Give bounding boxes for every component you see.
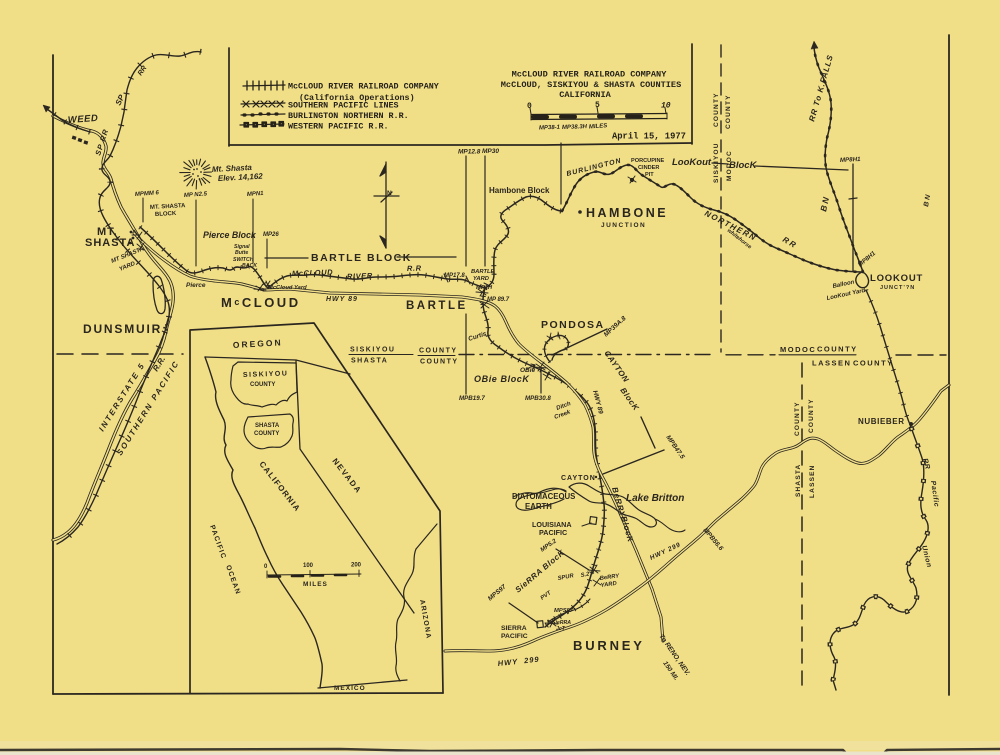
svg-text:COUNTY: COUNTY [794,401,801,436]
svg-text:McCloud Yard: McCloud Yard [268,285,307,291]
svg-text:MP26: MP26 [263,232,279,238]
svg-text:MP 89.7: MP 89.7 [487,297,510,303]
svg-text:COUNTY: COUNTY [853,359,894,368]
svg-text:NUBIEBER: NUBIEBER [858,417,905,426]
svg-text:BARTLE: BARTLE [471,269,496,275]
svg-text:MP30: MP30 [482,148,499,155]
svg-text:PORCUPINE: PORCUPINE [631,158,665,164]
svg-text:JUNCTION: JUNCTION [601,222,646,229]
svg-text:Hambone Block: Hambone Block [489,186,550,195]
svg-text:10: 10 [661,102,671,111]
svg-text:BURLINGTON NORTHERN R.R.: BURLINGTON NORTHERN R.R. [288,111,409,121]
svg-text:SHASTA: SHASTA [795,464,802,497]
svg-text:COUNTY: COUNTY [420,359,459,366]
svg-text:Pierce Block: Pierce Block [203,230,257,240]
svg-text:LASSEN: LASSEN [809,464,816,498]
svg-text:MP8H1: MP8H1 [840,156,862,164]
svg-text:JUNCT’?N: JUNCT’?N [880,285,915,291]
svg-text:BACK: BACK [242,263,258,269]
svg-text:McCLOUD: McCLOUD [221,295,301,310]
svg-text:MODOC: MODOC [780,345,816,354]
svg-text:DIATOMACEOUS: DIATOMACEOUS [512,492,575,501]
svg-text:McCLOUD RIVER RAILROAD COMPANY: McCLOUD RIVER RAILROAD COMPANY [512,70,668,80]
svg-text:YARD: YARD [473,276,490,282]
svg-text:MP38-1: MP38-1 [539,125,561,132]
svg-text:OBie: OBie [520,367,536,374]
svg-text:BLOCK: BLOCK [155,211,177,218]
svg-text:COUNTY: COUNTY [808,398,815,433]
svg-text:RIVER: RIVER [347,271,373,281]
svg-text:COUNTY: COUNTY [713,92,720,127]
svg-text:MP12.8: MP12.8 [458,149,481,156]
svg-text:CAYTON: CAYTON [561,475,596,482]
svg-text:LOOKOUT: LOOKOUT [870,273,923,284]
svg-text:MPS97: MPS97 [554,608,574,614]
svg-text:R.R: R.R [407,263,422,273]
svg-text:OBie BlocK: OBie BlocK [474,374,530,384]
svg-text:McCLOUD RIVER RAILROAD COMPANY: McCLOUD RIVER RAILROAD COMPANY [288,82,440,92]
svg-text:MILES: MILES [303,581,328,588]
svg-text:SHASTA: SHASTA [351,358,388,365]
svg-text:LASSEN: LASSEN [812,359,851,368]
svg-text:200: 200 [351,563,362,569]
svg-text:HAMBONE: HAMBONE [586,206,668,220]
svg-text:HWY 89: HWY 89 [326,296,358,303]
svg-text:BURNEY: BURNEY [573,638,645,653]
svg-text:MPB30.8: MPB30.8 [525,395,551,402]
svg-text:MP17.8: MP17.8 [444,273,465,279]
svg-text:BARTLE BLOCK: BARTLE BLOCK [311,252,412,264]
svg-text:COUNTY: COUNTY [725,94,732,129]
svg-text:MPN1: MPN1 [247,191,265,198]
svg-text:SOUTHERN PACIFIC LINES: SOUTHERN PACIFIC LINES [288,101,399,111]
svg-text:April 15, 1977: April 15, 1977 [612,132,686,142]
svg-text:5: 5 [595,101,600,110]
svg-text:COUNTY: COUNTY [419,348,458,355]
svg-text:MILES: MILES [589,123,608,130]
svg-text:Lake Britton: Lake Britton [626,493,684,504]
svg-text:DUNSMUIR:: DUNSMUIR: [83,322,168,336]
svg-text:MPB19.7: MPB19.7 [459,395,485,402]
svg-text:MP1H: MP1H [476,285,493,291]
svg-text:McCLOUD, SISKIYOU & SHASTA COU: McCLOUD, SISKIYOU & SHASTA COUNTIES [501,80,682,90]
svg-text:PACIFIC: PACIFIC [539,528,567,537]
svg-text:WEED: WEED [67,113,98,126]
svg-text:SIERRA: SIERRA [501,625,527,632]
svg-text:SISKIYOU: SISKIYOU [350,347,395,354]
svg-text:PACIFIC: PACIFIC [501,633,528,640]
svg-text:JcT: JcT [556,626,566,632]
svg-text:COUNTY: COUNTY [250,382,275,388]
svg-text:0: 0 [527,102,532,111]
svg-text:N: N [387,190,392,197]
svg-text:CINDER: CINDER [638,165,659,171]
svg-text:Butte: Butte [235,250,248,256]
svg-text:COUNTY: COUNTY [254,431,279,437]
svg-text:WESTERN PACIFIC R.R.: WESTERN PACIFIC R.R. [288,122,389,132]
svg-text:PONDOSA: PONDOSA [541,319,605,331]
svg-text:BARTLE: BARTLE [406,300,468,312]
svg-text:CALIFORNIA: CALIFORNIA [559,90,611,100]
svg-text:EARTH: EARTH [525,502,552,511]
svg-text:Pierce: Pierce [186,282,206,289]
svg-text:100: 100 [303,563,314,569]
svg-text:SHASTA: SHASTA [255,423,280,429]
svg-text:SHASTA: SHASTA [85,237,135,249]
svg-text:MEXICO: MEXICO [334,685,366,692]
svg-text:MP38.3H: MP38.3H [562,124,588,131]
svg-text:COUNTY: COUNTY [817,345,858,354]
svg-text:LooKout: LooKout [672,157,712,168]
svg-text:PIT: PIT [645,172,654,178]
svg-text:BlocK: BlocK [729,160,758,171]
svg-text:McCLOUD: McCLOUD [292,268,334,278]
